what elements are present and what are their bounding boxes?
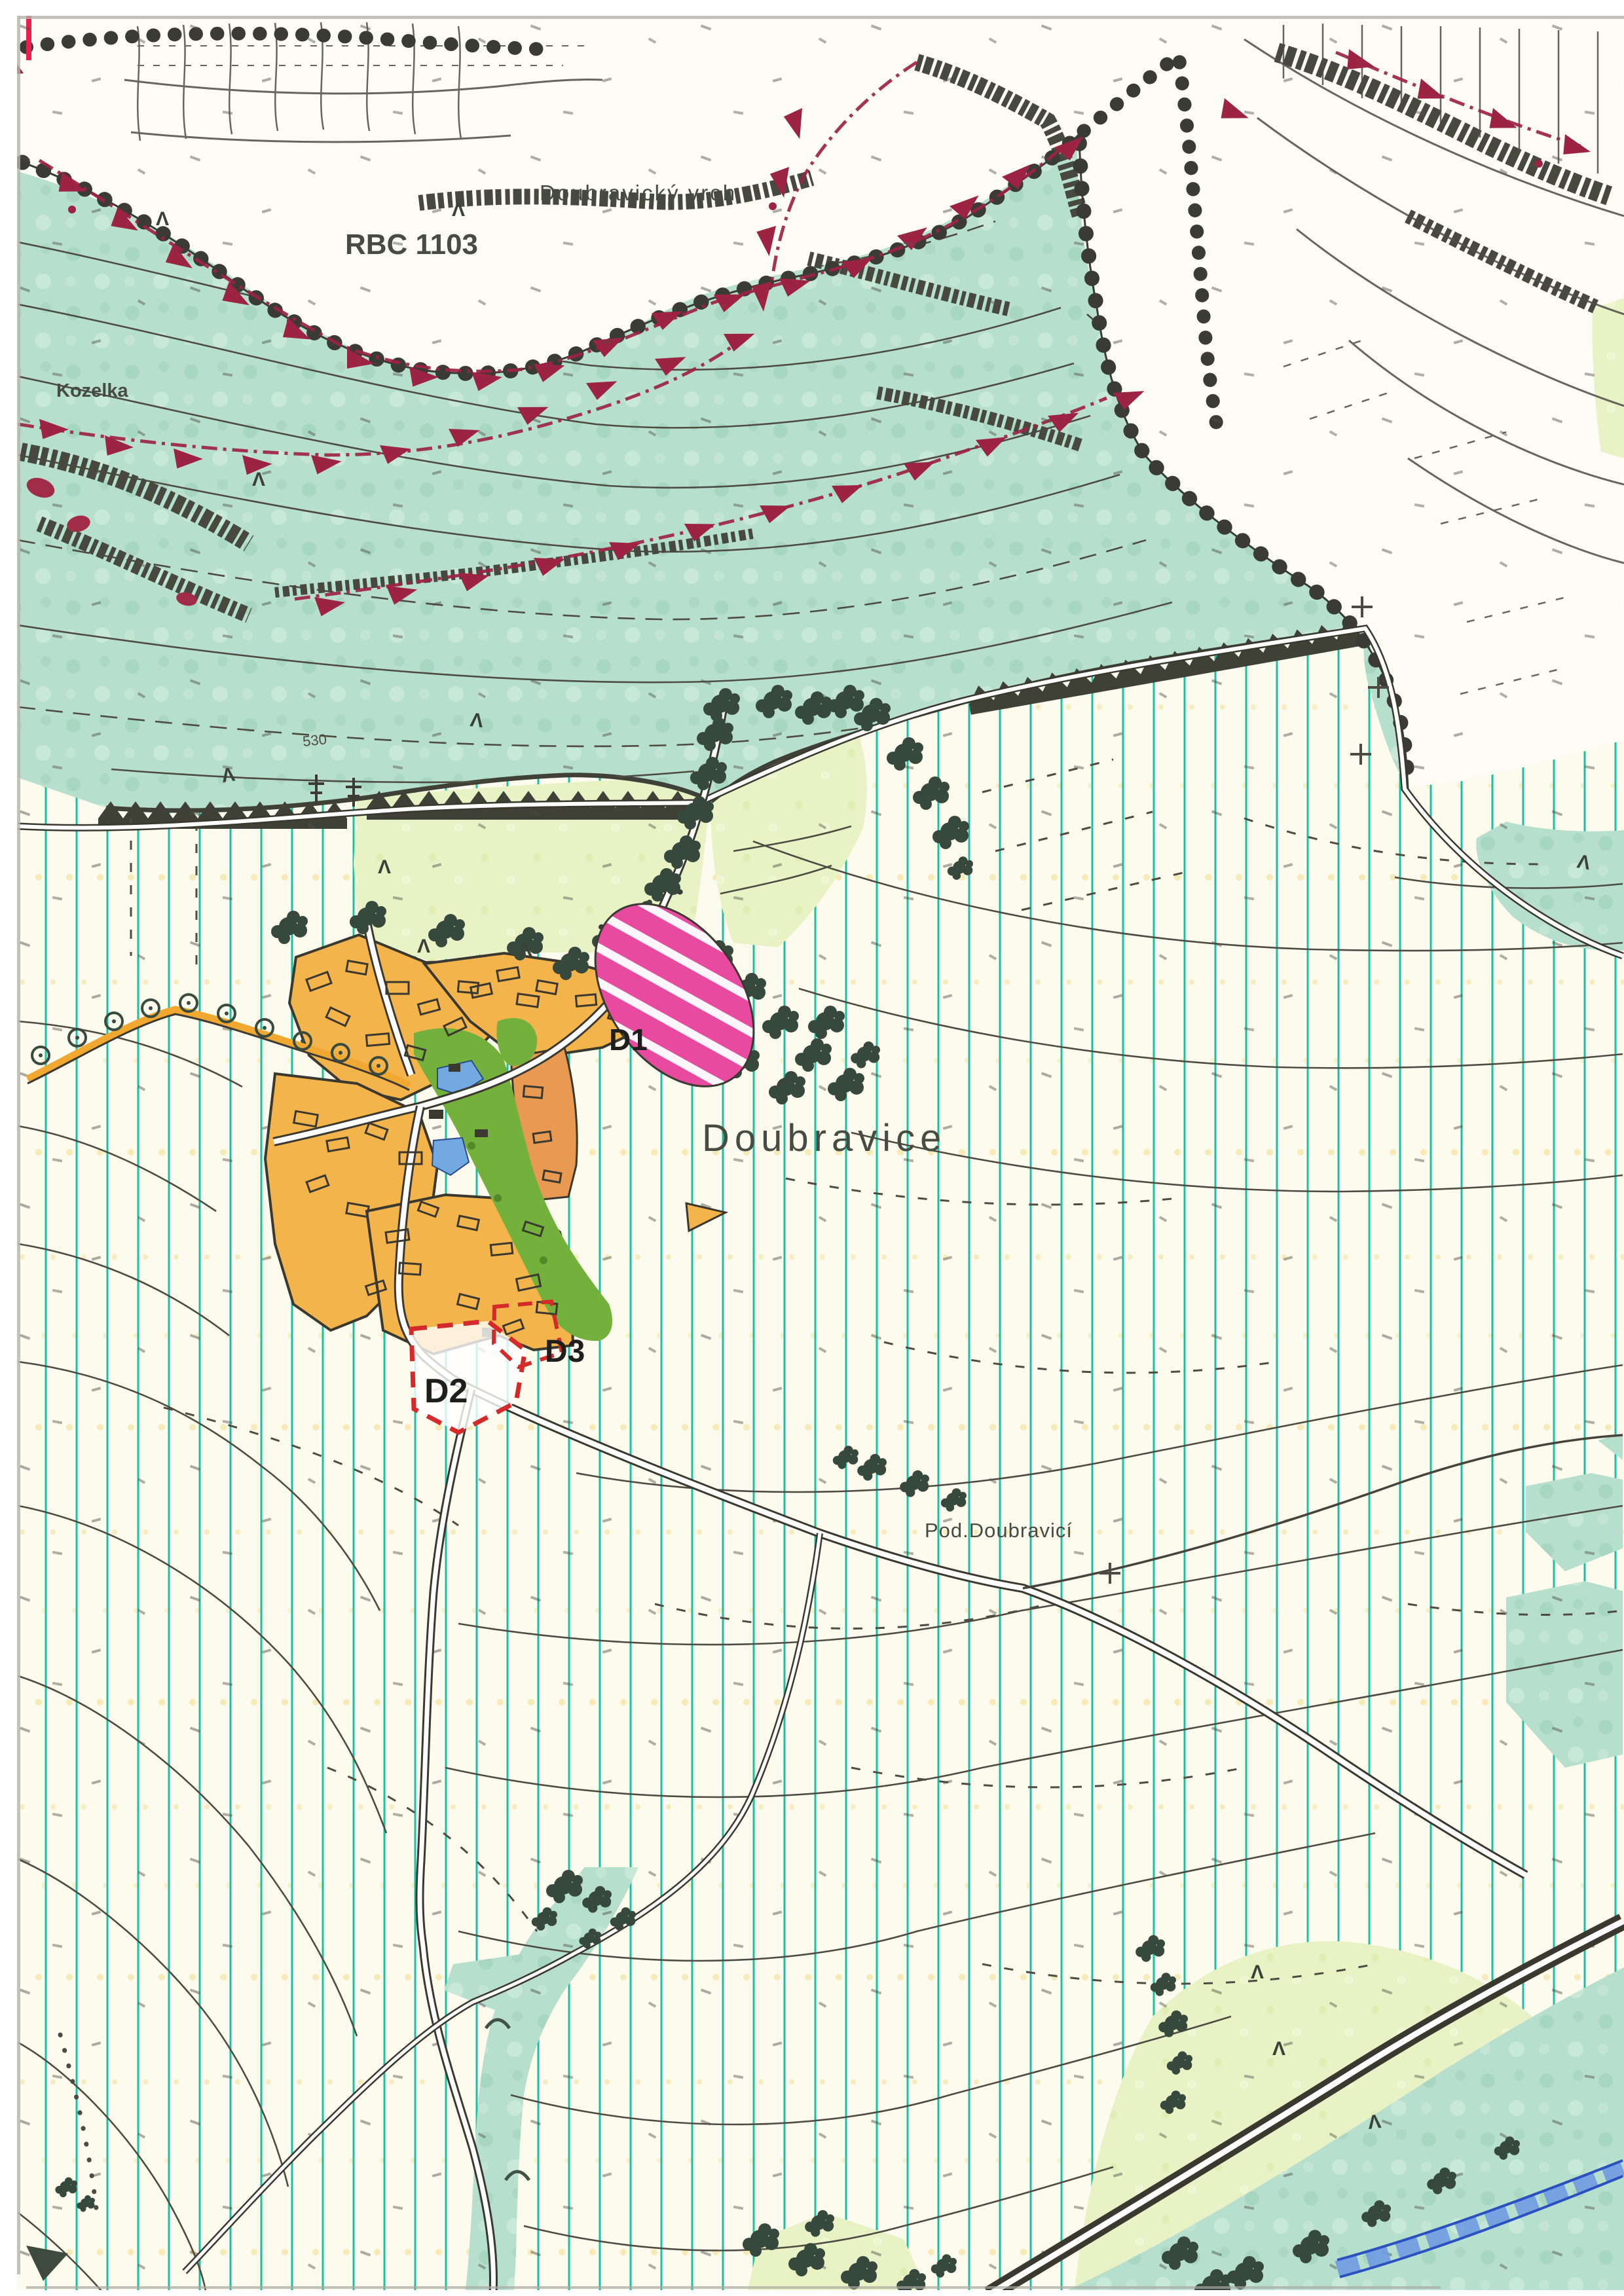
svg-text:Λ: Λ [452,199,465,221]
label-d2: D2 [424,1372,468,1410]
svg-text:Λ: Λ [252,469,265,490]
svg-text:Λ: Λ [156,208,169,230]
scanned-map-page: Λ Λ Λ Λ Λ Λ Λ Λ Λ Λ Λ Λ RBC 1103 Doubrav… [0,0,1624,2296]
svg-text:Λ: Λ [469,709,484,732]
label-locality: Pod.Doubravicí [925,1519,1073,1542]
svg-text:Λ: Λ [417,936,430,957]
label-d3: D3 [545,1334,585,1369]
label-rock-outcrop: Kozelka [56,380,128,401]
label-hill: Doubravický vrch [540,181,737,205]
label-d1: D1 [609,1023,648,1057]
svg-text:Λ: Λ [378,856,391,878]
svg-text:Λ: Λ [1272,2038,1285,2060]
svg-text:Λ: Λ [518,939,533,962]
label-village: Doubravice [702,1117,946,1159]
svg-text:Λ: Λ [1367,2111,1382,2134]
map-canvas: Λ Λ Λ Λ Λ Λ Λ Λ Λ Λ Λ Λ RBC 1103 Doubrav… [0,0,1624,2296]
label-rbc: RBC 1103 [345,228,478,261]
svg-text:Λ: Λ [1251,1961,1264,1983]
label-contour-530: 530 [302,731,327,750]
